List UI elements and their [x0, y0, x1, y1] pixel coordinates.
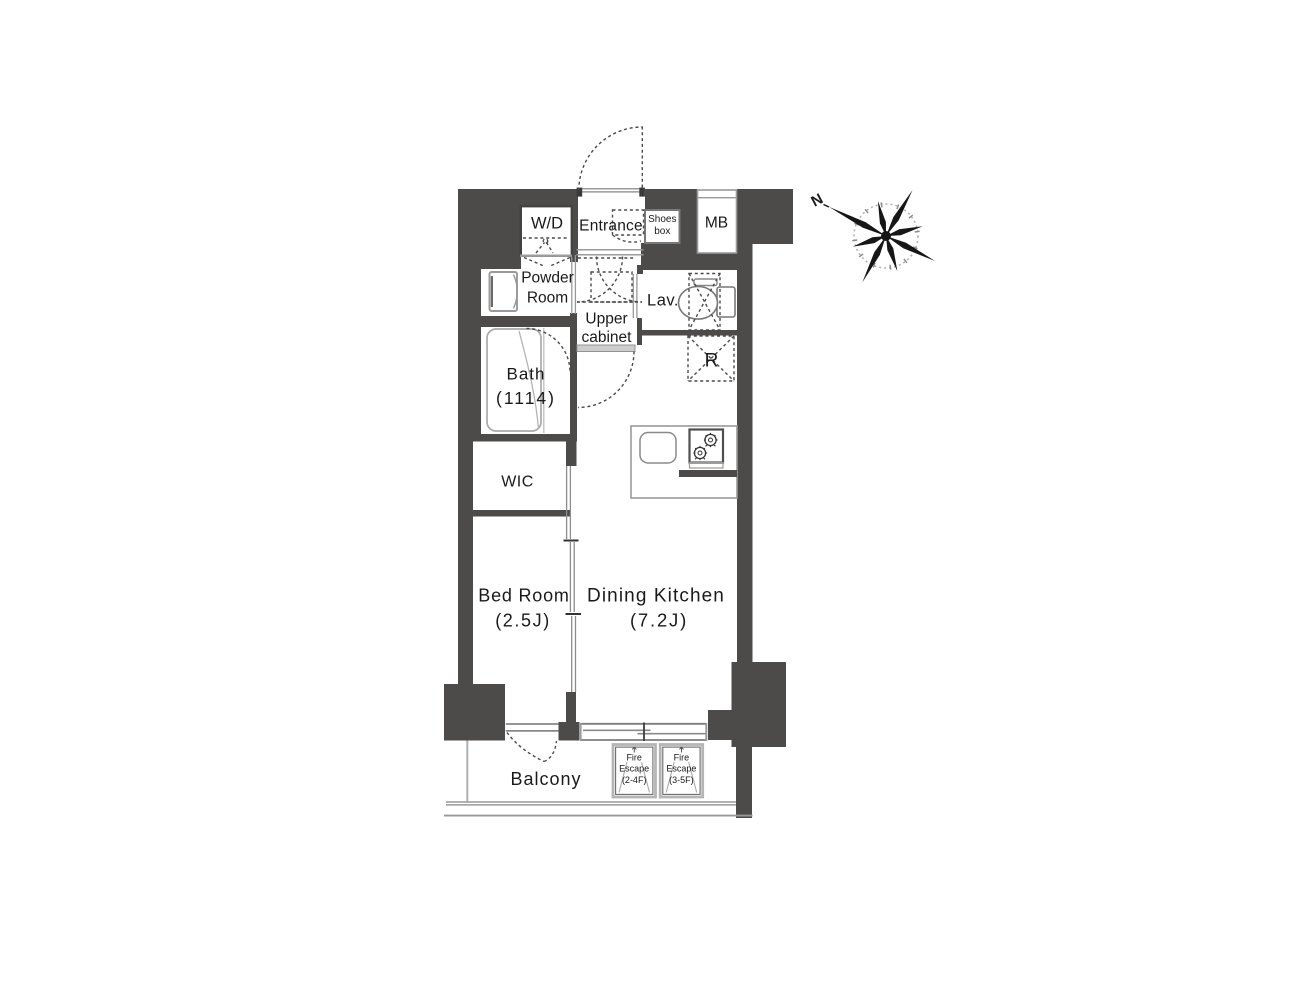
svg-text:(1114): (1114) — [496, 388, 556, 408]
svg-text:Bed Room: Bed Room — [478, 586, 569, 606]
svg-text:Fire: Fire — [674, 753, 690, 763]
svg-text:(7.2J): (7.2J) — [630, 610, 688, 631]
svg-text:Dining Kitchen: Dining Kitchen — [587, 586, 725, 607]
svg-text:box: box — [654, 226, 670, 237]
svg-text:(2.5J): (2.5J) — [495, 611, 551, 631]
svg-text:Bath: Bath — [507, 365, 546, 384]
svg-text:Fire: Fire — [626, 753, 642, 763]
svg-text:R: R — [705, 351, 719, 372]
svg-text:W/D: W/D — [531, 215, 563, 233]
svg-text:WIC: WIC — [501, 474, 534, 491]
svg-text:Powder: Powder — [521, 270, 574, 287]
svg-text:Entrance: Entrance — [579, 218, 643, 235]
svg-text:(3-5F): (3-5F) — [669, 775, 694, 785]
svg-text:Escape: Escape — [666, 764, 696, 774]
svg-text:Lav.: Lav. — [647, 292, 679, 310]
svg-text:cabinet: cabinet — [582, 329, 633, 346]
svg-text:Room: Room — [527, 290, 568, 307]
svg-text:MB: MB — [705, 215, 728, 232]
svg-text:(2-4F): (2-4F) — [622, 775, 647, 785]
svg-text:Balcony: Balcony — [510, 769, 581, 789]
svg-text:Shoes: Shoes — [648, 214, 676, 225]
svg-text:Escape: Escape — [619, 764, 649, 774]
svg-text:Upper: Upper — [585, 311, 627, 328]
